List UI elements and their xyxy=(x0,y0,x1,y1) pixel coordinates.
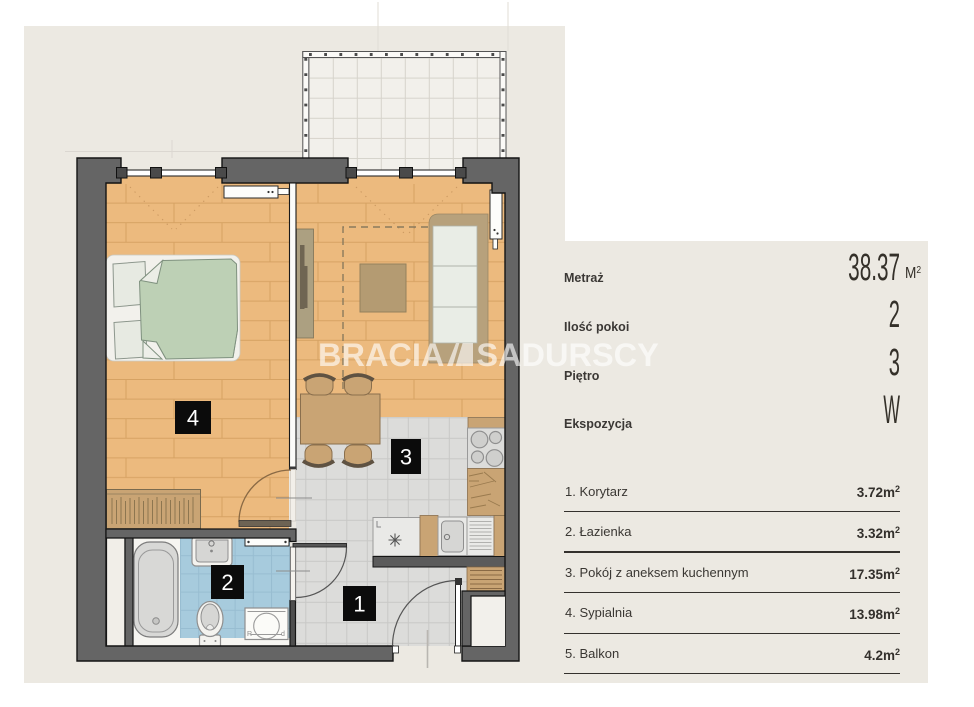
svg-text:3: 3 xyxy=(400,445,412,470)
svg-text:d: d xyxy=(281,631,285,638)
svg-text:1: 1 xyxy=(353,592,365,617)
svg-text:4: 4 xyxy=(187,406,199,431)
svg-text:R: R xyxy=(247,631,252,638)
svg-text:2: 2 xyxy=(221,570,233,595)
